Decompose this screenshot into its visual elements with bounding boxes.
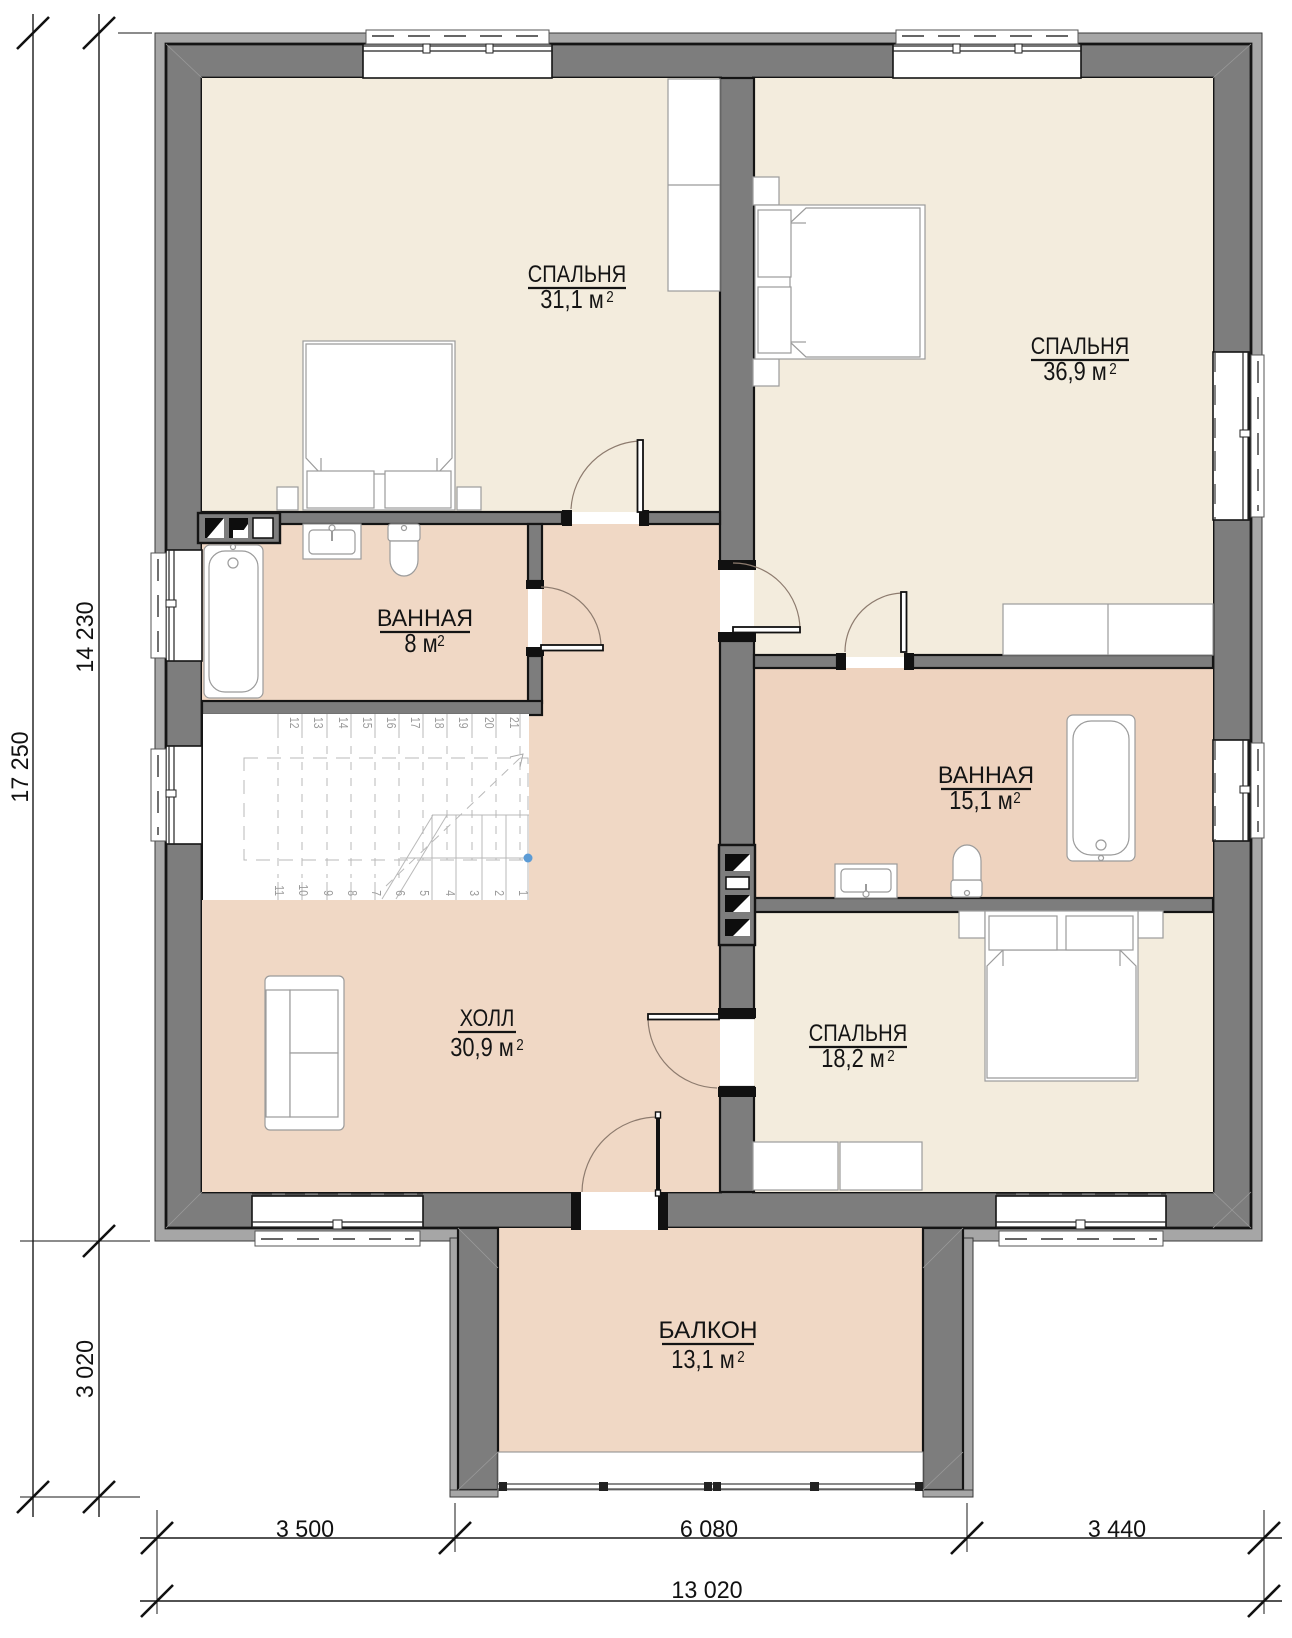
svg-text:5: 5: [417, 890, 431, 896]
svg-text:3: 3: [467, 890, 481, 896]
svg-text:19: 19: [456, 717, 470, 729]
svg-text:СПАЛЬНЯ: СПАЛЬНЯ: [809, 1019, 907, 1046]
svg-text:СПАЛЬНЯ: СПАЛЬНЯ: [528, 260, 626, 287]
svg-text:12: 12: [287, 717, 301, 729]
svg-text:15: 15: [360, 717, 374, 729]
svg-text:2: 2: [492, 890, 506, 896]
svg-text:4: 4: [443, 890, 457, 896]
svg-text:8 м: 8 м: [404, 629, 437, 658]
svg-text:13,1 м: 13,1 м: [671, 1345, 735, 1374]
svg-text:2: 2: [737, 1349, 744, 1366]
svg-text:6 080: 6 080: [680, 1517, 738, 1543]
svg-text:ВАННАЯ: ВАННАЯ: [377, 606, 473, 632]
svg-text:3 020: 3 020: [73, 1340, 99, 1398]
svg-text:17: 17: [408, 717, 422, 729]
svg-text:30,9 м: 30,9 м: [450, 1033, 514, 1062]
svg-text:9: 9: [321, 890, 335, 896]
svg-text:14: 14: [336, 717, 350, 729]
svg-text:18,2 м: 18,2 м: [821, 1044, 885, 1073]
svg-text:17 250: 17 250: [8, 731, 34, 802]
svg-text:2: 2: [1109, 361, 1116, 378]
svg-text:13 020: 13 020: [671, 1578, 742, 1604]
svg-text:16: 16: [384, 717, 398, 729]
svg-text:7: 7: [369, 890, 383, 896]
svg-text:2: 2: [606, 289, 613, 306]
svg-text:36,9 м: 36,9 м: [1043, 357, 1107, 386]
svg-text:3 440: 3 440: [1088, 1517, 1146, 1543]
svg-text:ХОЛЛ: ХОЛЛ: [460, 1004, 515, 1031]
svg-text:8: 8: [345, 890, 359, 896]
svg-text:14 230: 14 230: [73, 601, 99, 672]
svg-text:2: 2: [887, 1048, 894, 1065]
svg-text:31,1 м: 31,1 м: [540, 285, 604, 314]
svg-text:3 500: 3 500: [276, 1517, 334, 1543]
svg-text:10: 10: [296, 884, 310, 896]
svg-text:21: 21: [507, 717, 521, 729]
svg-text:2: 2: [516, 1037, 523, 1054]
svg-text:6: 6: [393, 890, 407, 896]
svg-text:2: 2: [437, 633, 444, 650]
svg-text:ВАННАЯ: ВАННАЯ: [938, 763, 1034, 789]
svg-text:СПАЛЬНЯ: СПАЛЬНЯ: [1031, 332, 1129, 359]
svg-text:2: 2: [1013, 790, 1020, 807]
svg-text:1: 1: [516, 890, 530, 896]
svg-text:БАЛКОН: БАЛКОН: [658, 1317, 757, 1344]
svg-text:18: 18: [432, 717, 446, 729]
svg-text:13: 13: [311, 717, 325, 729]
svg-text:15,1 м: 15,1 м: [949, 786, 1013, 815]
svg-text:11: 11: [272, 885, 286, 896]
svg-text:20: 20: [482, 717, 496, 729]
